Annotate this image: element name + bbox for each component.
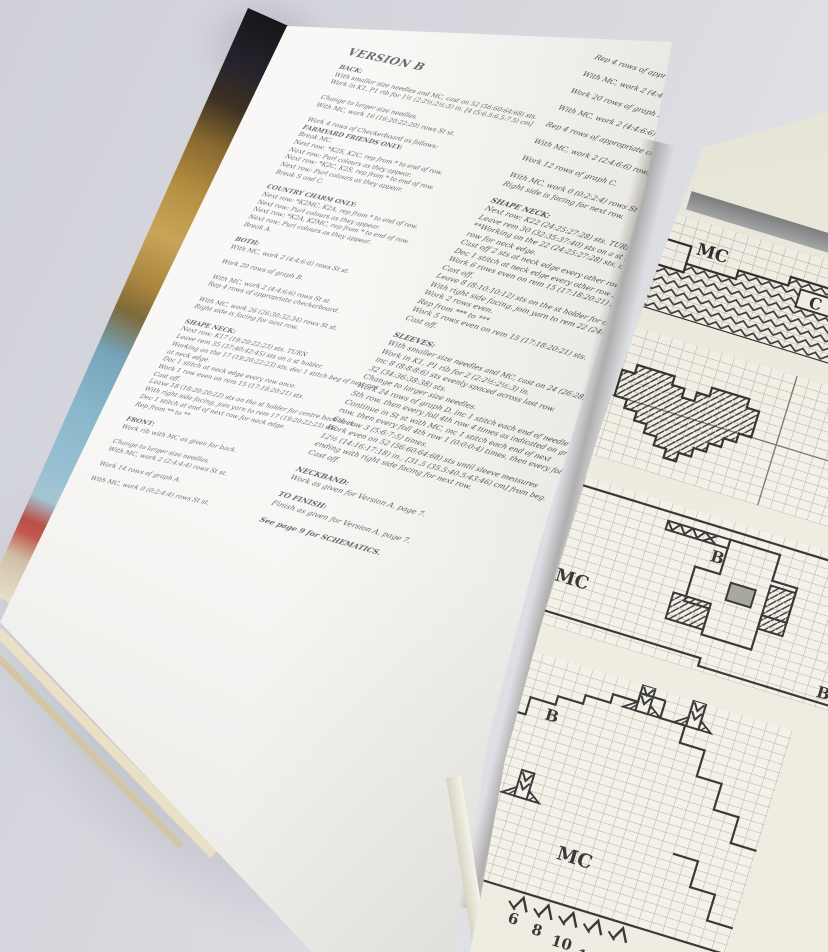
size-number: 6	[506, 909, 521, 929]
size-arrow	[582, 917, 605, 936]
size-arrow	[532, 902, 555, 921]
size-arrow	[607, 925, 630, 944]
size-arrow	[557, 909, 580, 928]
size-number: 8	[529, 920, 544, 940]
size-number: 10	[549, 931, 574, 952]
size-number: 12	[574, 945, 599, 952]
book-photo: VERSION B BACK:With smaller size needles…	[0, 0, 828, 952]
